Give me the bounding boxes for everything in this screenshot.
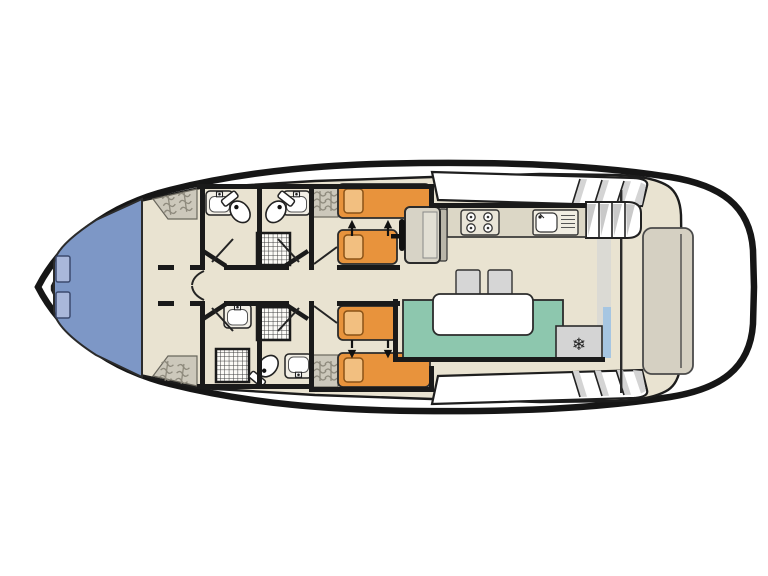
bed-single [338, 306, 397, 340]
walkway-bottom [432, 370, 647, 404]
bow-hatch [56, 256, 70, 282]
galley-sink [533, 210, 578, 235]
boat-deck-plan-page: ▲ ▲ ▼ ▼ [0, 0, 768, 576]
wardrobe-cabin-bottom [312, 355, 338, 387]
boat-deck-plan: ▲ ▲ ▼ ▼ [0, 0, 768, 576]
pillow [344, 235, 363, 259]
dinette-table [433, 294, 533, 335]
wardrobe-cabin-top [312, 185, 338, 217]
freezer-icon: ❄ [572, 335, 586, 355]
arrow-up-icon: ▲ [384, 217, 393, 230]
stool [456, 270, 480, 295]
pillow [344, 311, 363, 335]
helm-console [423, 212, 437, 258]
aft-stairs [586, 202, 641, 238]
arrow-up-icon: ▲ [348, 217, 357, 230]
stool [488, 270, 512, 295]
bow-deck [54, 199, 142, 377]
walkway-top [432, 172, 647, 206]
aft-bench [643, 228, 693, 374]
pillow [344, 358, 363, 382]
washbasin [285, 354, 312, 378]
sliding-door [603, 307, 611, 358]
pillow [344, 189, 363, 213]
steering-column [391, 234, 400, 239]
bow-hatch [56, 292, 70, 318]
stove [461, 210, 499, 235]
fridge: ❄ [556, 326, 602, 360]
arrow-down-icon: ▼ [348, 347, 357, 360]
arrow-down-icon: ▼ [384, 347, 393, 360]
galley [447, 206, 586, 237]
shower [216, 349, 249, 382]
